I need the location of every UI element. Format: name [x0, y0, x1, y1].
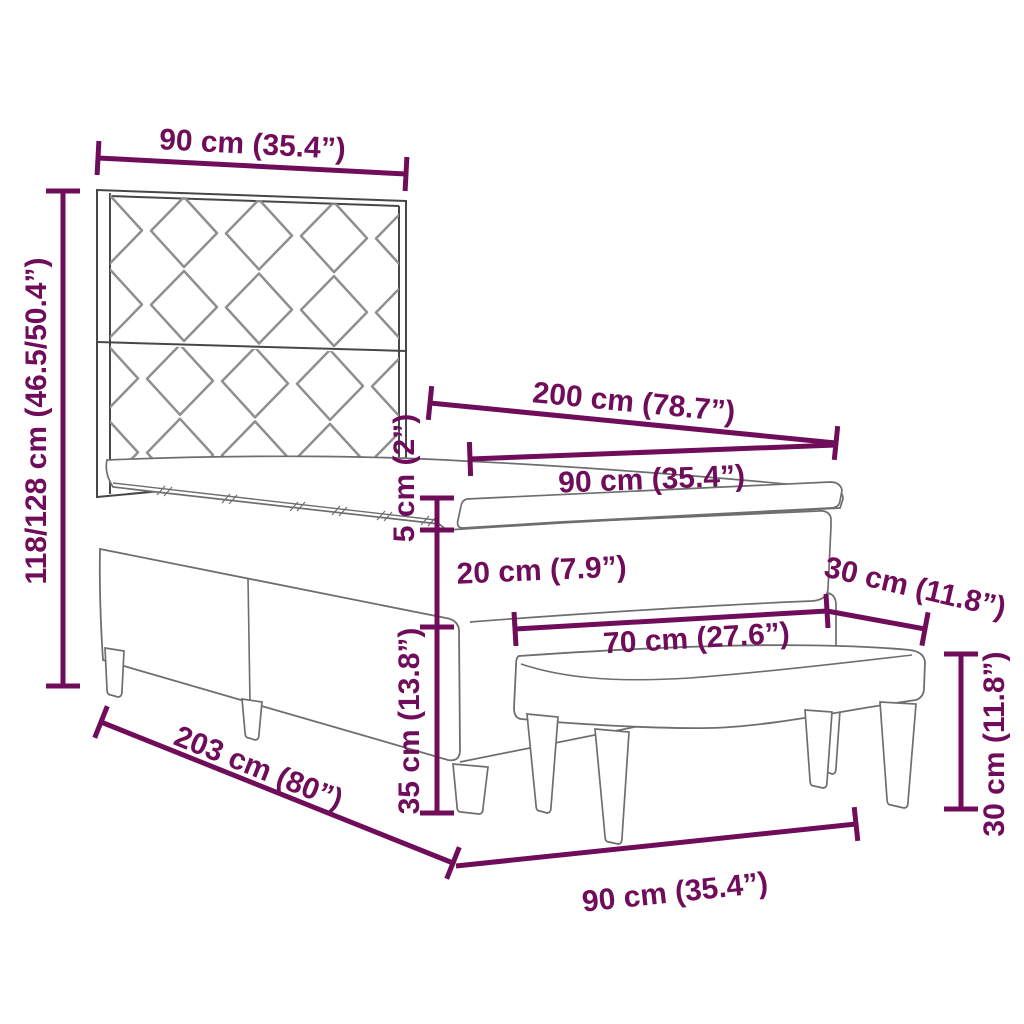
svg-text:118/128 cm (46.5/50.4”): 118/128 cm (46.5/50.4”) — [20, 258, 53, 585]
svg-text:35 cm (13.8”): 35 cm (13.8”) — [393, 628, 426, 815]
svg-text:5 cm (2”): 5 cm (2”) — [388, 414, 421, 542]
svg-text:30 cm (11.8”): 30 cm (11.8”) — [978, 651, 1011, 836]
